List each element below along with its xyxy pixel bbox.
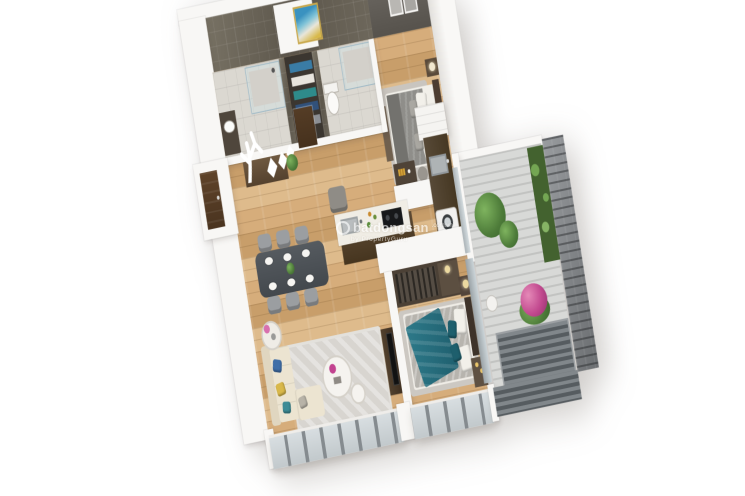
dining-chair-5 [285,291,301,311]
dining-chair-2 [275,229,291,249]
dining-chair-6 [303,287,319,307]
bathroom2-shower-tray [342,47,373,84]
dining-chair-1 [257,233,273,253]
bathroom1-shower-tray [249,66,281,107]
bedroom1-frame-1 [387,0,404,17]
waffle-tray [398,168,406,176]
watermark: batdongsan .com.vn by PropertyGuru [336,221,453,244]
watermark-byline: by PropertyGuru [351,237,453,244]
watermark-logo-icon [336,221,350,235]
watermark-domain: .com.vn [432,223,453,229]
sofa-pillow-blue [273,359,282,373]
wall-artwork [292,2,323,44]
counter-sink [429,153,449,176]
dining-chair-3 [294,225,310,245]
floor-plan-render: batdongsan .com.vn by PropertyGuru [0,0,745,496]
master-pillow-teal-1 [448,320,457,338]
watermark-brand: batdongsan [353,221,429,234]
corridor-accent-chair [327,185,348,214]
sofa-pillow-teal [282,402,291,414]
dining-chair-4 [266,295,282,315]
